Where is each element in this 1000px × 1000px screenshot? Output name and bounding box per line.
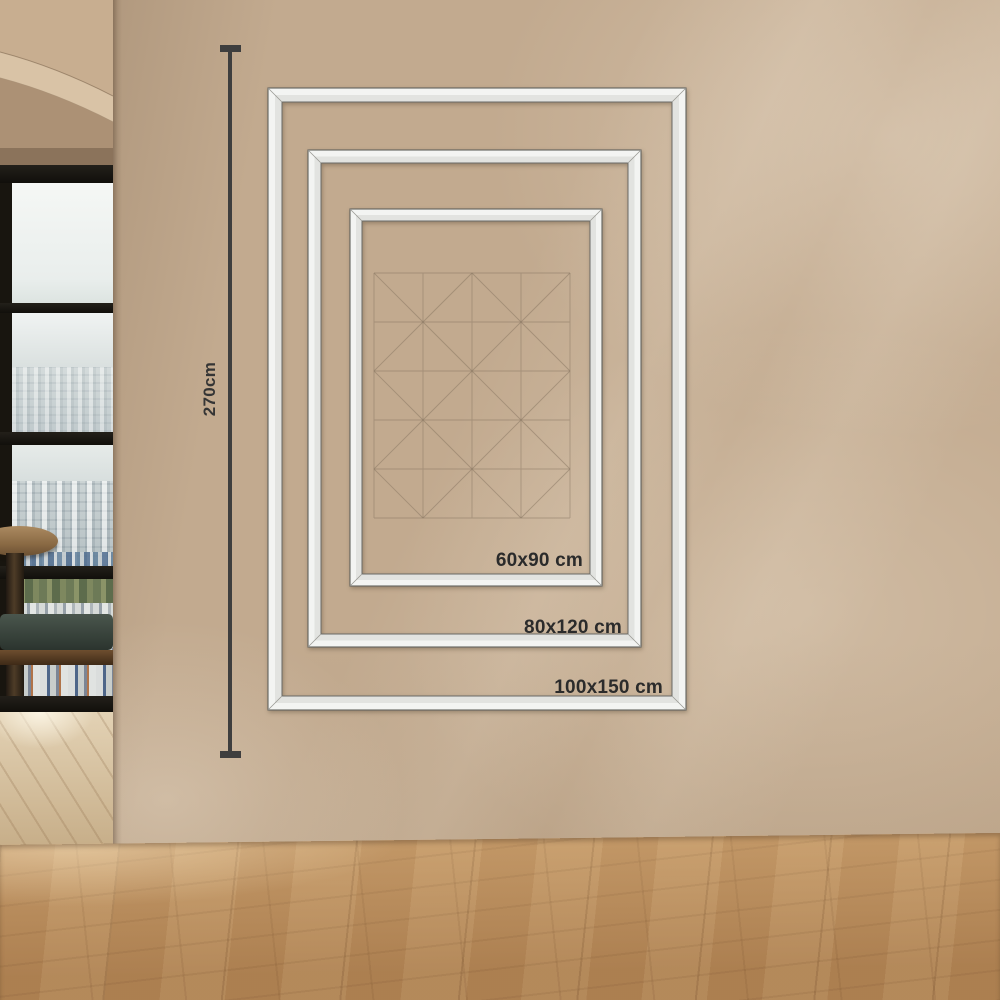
dimension-cap-bottom [220,751,241,758]
size-guide-scene: 270cm 60x90 cm 80x120 cm 100x150 cm [0,0,1000,1000]
wood-floor [0,833,1000,1000]
size-label-100x150: 100x150 cm [554,677,663,699]
artwork-pattern [374,273,570,518]
dimension-cap-top [220,45,241,52]
wall-height-label: 270cm [200,329,220,449]
size-label-60x90: 60x90 cm [496,550,583,572]
size-label-80x120: 80x120 cm [524,617,622,639]
frame-60x90 [350,209,602,586]
frame-100x150 [268,88,686,710]
dimension-line [228,47,232,758]
